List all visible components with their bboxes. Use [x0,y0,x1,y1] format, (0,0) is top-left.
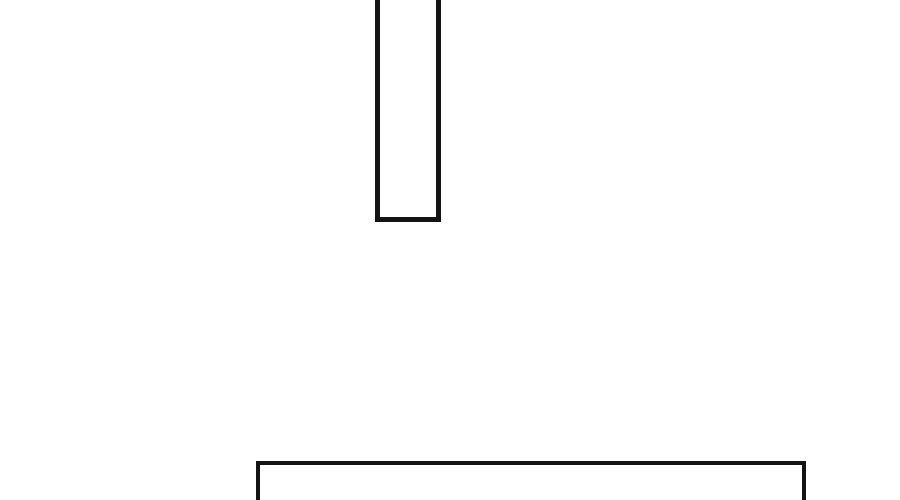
tall-outlined-rectangle [375,0,441,222]
diagram-canvas [0,0,900,500]
wide-outlined-rectangle [256,461,806,500]
